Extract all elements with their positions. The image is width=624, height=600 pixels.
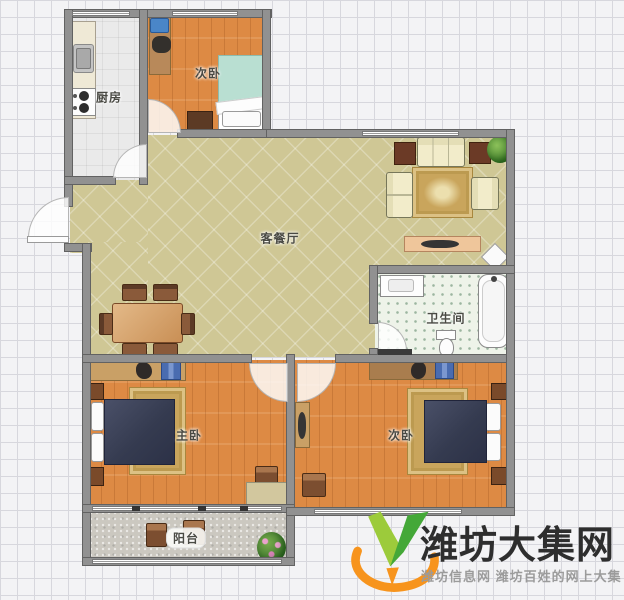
dining-table xyxy=(112,303,183,343)
bedroom-top-computer xyxy=(150,18,169,33)
stove-burner xyxy=(79,103,89,113)
room-label-balcony: 阳台 xyxy=(166,528,206,549)
wall-mid-west xyxy=(82,354,252,363)
wall-bathroom-top xyxy=(369,265,515,274)
sofa-three-seat xyxy=(417,137,465,167)
stove-burner xyxy=(79,91,89,101)
wall-kitchen-bottom xyxy=(64,176,116,185)
wall-bedroom-top-bottom xyxy=(177,129,267,138)
window-mullion xyxy=(132,506,140,511)
room-label-bathroom: 卫生间 xyxy=(426,310,465,327)
room-label-master: 主卧 xyxy=(176,427,202,444)
room-label-kitchen: 厨房 xyxy=(96,89,122,106)
tv-bedroom-second xyxy=(298,412,306,439)
window-kitchen xyxy=(72,11,130,16)
bedroom-second-nightstand xyxy=(491,383,507,400)
window-mullion xyxy=(240,506,248,511)
master-pillow xyxy=(91,402,104,431)
site-name: 潍坊大集网 xyxy=(420,514,615,569)
window-mullion xyxy=(198,506,206,511)
bedroom-second-desk-chair xyxy=(411,362,426,379)
wall-bathroom-left-upper xyxy=(369,265,378,324)
bathtub-faucet xyxy=(491,276,497,282)
sofa-two-seat xyxy=(386,172,413,218)
dining-chair xyxy=(99,313,113,335)
wall-right xyxy=(506,129,515,516)
wall-bedroom-top-right xyxy=(262,9,271,138)
dining-chair xyxy=(181,313,195,335)
room-label-bedroom-second: 次卧 xyxy=(388,427,414,444)
bedroom-second-pillow xyxy=(485,403,501,431)
bathtub-inner xyxy=(482,280,505,342)
armchair xyxy=(471,177,499,210)
bedroom-second-nightstand xyxy=(491,467,507,485)
dining-chair xyxy=(153,284,178,301)
master-bed xyxy=(104,399,175,465)
wall-left-lower xyxy=(82,243,91,566)
master-pillow xyxy=(91,433,104,462)
window-living xyxy=(362,131,459,136)
living-rug xyxy=(412,167,473,218)
master-nightstand xyxy=(89,467,104,486)
bedroom-second-bed xyxy=(424,400,487,463)
master-desk-chair xyxy=(136,362,152,379)
window-master-balcony xyxy=(92,506,282,511)
kitchen-sink-basin xyxy=(76,48,91,69)
side-table-left xyxy=(394,142,416,165)
room-label-living: 客餐厅 xyxy=(260,230,299,247)
room-label-bedroom-top: 次卧 xyxy=(195,65,221,82)
tv-living xyxy=(421,240,459,248)
window-bedroom-top xyxy=(172,11,238,16)
bedroom-second-pillow xyxy=(485,433,501,461)
master-nightstand xyxy=(89,383,104,400)
bathroom-basin xyxy=(388,279,414,292)
entry-door-leaf xyxy=(27,236,69,243)
bathroom-door-leaf xyxy=(378,349,412,355)
dining-chair xyxy=(122,284,147,301)
master-clothes xyxy=(161,360,181,380)
window-balcony xyxy=(92,559,282,564)
wall-mid-east xyxy=(335,354,507,363)
bedroom-second-stool xyxy=(302,473,326,497)
stove-knob xyxy=(73,94,77,98)
stove-knob xyxy=(73,106,77,110)
bedroom-top-pillow xyxy=(222,111,261,127)
site-tagline: 潍坊信息网 潍坊百姓的网上大集 xyxy=(421,566,622,585)
floorplan-canvas: 厨房 次卧 客餐厅 卫生间 主卧 次卧 阳台 潍坊大集网 潍坊信息网 潍坊百姓的… xyxy=(0,0,624,600)
entry-door-arc xyxy=(28,197,69,238)
balcony-stool xyxy=(146,523,167,547)
bedroom-top-chair xyxy=(152,36,171,53)
